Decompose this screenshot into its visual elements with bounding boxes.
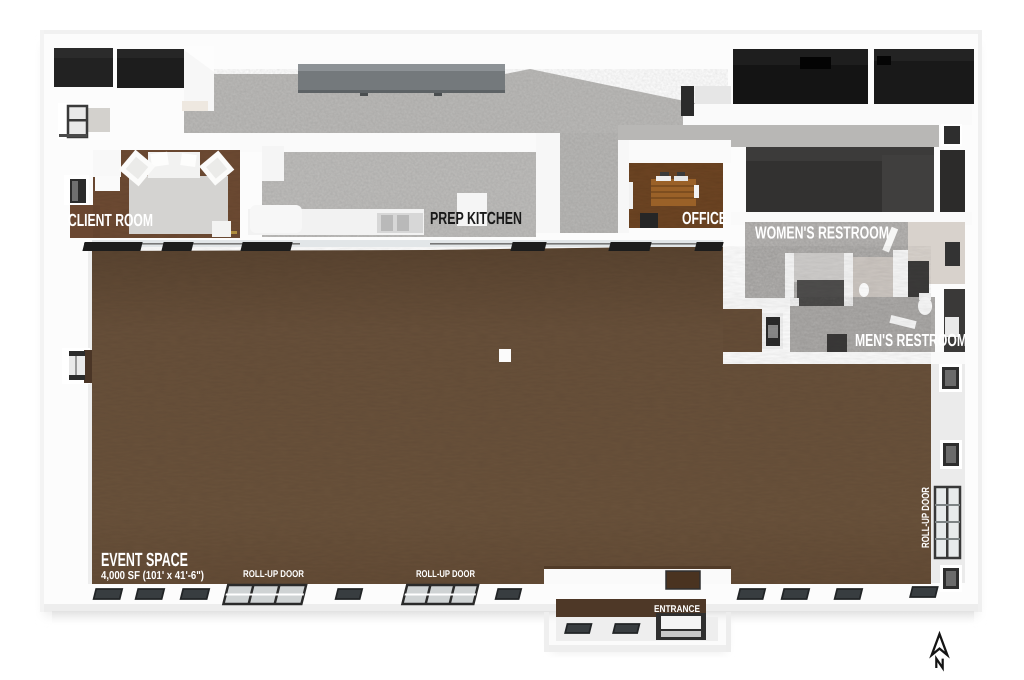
- svg-text:EVENT SPACE: EVENT SPACE: [101, 550, 188, 571]
- svg-text:CLIENT ROOM: CLIENT ROOM: [68, 210, 153, 230]
- svg-text:PREP KITCHEN: PREP KITCHEN: [430, 208, 522, 228]
- svg-text:ENTRANCE: ENTRANCE: [654, 604, 700, 615]
- svg-text:ROLL-UP DOOR: ROLL-UP DOOR: [920, 487, 932, 548]
- svg-text:4,000 SF (101' x 41'-6"): 4,000 SF (101' x 41'-6"): [101, 570, 204, 582]
- svg-text:OFFICE: OFFICE: [682, 208, 727, 228]
- svg-text:WOMEN'S RESTROOM: WOMEN'S RESTROOM: [755, 223, 889, 243]
- svg-text:MEN'S RESTROOM: MEN'S RESTROOM: [855, 330, 967, 350]
- svg-text:ROLL-UP DOOR: ROLL-UP DOOR: [416, 569, 475, 580]
- svg-text:ROLL-UP DOOR: ROLL-UP DOOR: [243, 569, 304, 580]
